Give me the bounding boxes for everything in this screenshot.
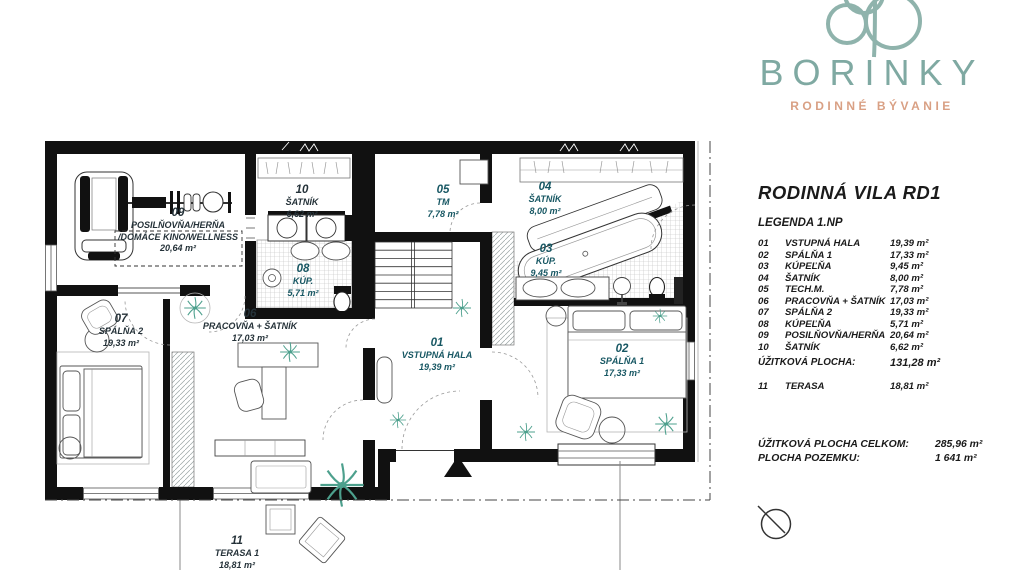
room-label-01: 01 VSTUPNÁ HALA 19,39 m² — [377, 336, 497, 373]
legend-heading: LEGENDA 1.NP — [758, 217, 843, 229]
nightstand-icon — [546, 306, 566, 326]
plot-area-row: PLOCHA POZEMKU: 1 641 m² — [758, 453, 1008, 467]
desk-return — [262, 367, 286, 419]
toilet-icon — [649, 278, 665, 300]
room-label-10: 10 ŠATNÍK 6,62 m² — [261, 183, 343, 220]
floor-plan-page: 01 VSTUPNÁ HALA 19,39 m² 02 SPÁLŇA 1 17,… — [0, 0, 1011, 570]
legend-list: 01VSTUPNÁ HALA19,39 m² 02SPÁLŇA 117,33 m… — [758, 238, 968, 353]
total-area-row: ÚŽITKOVÁ PLOCHA CELKOM: 285,96 m² — [758, 439, 1008, 453]
room-label-11: 11 TERASA 1 18,81 m² — [196, 534, 278, 570]
page-title: RODINNÁ VILA RD1 — [758, 182, 941, 204]
desk-icon — [238, 343, 318, 367]
brand-name: BORINKY — [752, 52, 992, 94]
brand-tagline: RODINNÉ BÝVANIE — [752, 99, 992, 113]
legend-row: 01VSTUPNÁ HALA19,39 m² — [758, 238, 968, 250]
legend-row: 02SPÁLŇA 117,33 m² — [758, 250, 968, 262]
legend-row: 10ŠATNÍK6,62 m² — [758, 342, 968, 354]
sink-icon — [523, 279, 557, 297]
terrace-row: 11 TERASA 18,81 m² — [758, 381, 978, 393]
study-furniture — [215, 343, 318, 456]
room-label-07: 07 SPÁLŇA 2 19,33 m² — [62, 312, 180, 349]
legend-row: 08KÚPEĽŇA5,71 m² — [758, 319, 968, 331]
room-label-02: 02 SPÁLŇA 1 17,33 m² — [562, 342, 682, 379]
room-label-06: 06 PRACOVŇA + ŠATNÍK 17,03 m² — [172, 307, 328, 344]
ottoman-icon — [599, 417, 625, 443]
room-label-08: 08 KÚP. 5,71 m² — [262, 262, 344, 299]
double-bed-icon — [60, 366, 142, 458]
armchair-icon — [553, 392, 604, 441]
coffee-table-icon — [266, 505, 295, 534]
north-compass-icon — [752, 501, 798, 543]
legend-row: 06PRACOVŇA + ŠATNÍK17,03 m² — [758, 296, 968, 308]
room-label-04: 04 ŠATNÍK 8,00 m² — [505, 180, 585, 217]
legend-row: 05TECH.M.7,78 m² — [758, 284, 968, 296]
sideboard-icon — [215, 440, 305, 456]
lounge-chair-icon — [298, 516, 346, 564]
room-label-09: 09 POSILŇOVŇA/HERŇA /DOMÁCE KINO/WELLNES… — [100, 206, 256, 254]
borinky-logo-icon — [818, 0, 926, 60]
sink-icon — [322, 242, 350, 260]
legend-row: 07SPÁLŇA 219,33 m² — [758, 307, 968, 319]
room-label-05: 05 TM 7,78 m² — [403, 183, 483, 220]
legend-row: 04ŠATNÍK8,00 m² — [758, 273, 968, 285]
sink-icon — [291, 242, 319, 260]
sink-icon — [561, 279, 595, 297]
staircase — [375, 242, 452, 308]
usable-area-row: ÚŽITKOVÁ PLOCHA: 131,28 m² — [758, 357, 978, 371]
legend-row: 03KÚPEĽŇA9,45 m² — [758, 261, 968, 273]
floor-plan-drawing — [0, 0, 745, 570]
room-label-03: 03 KÚP. 9,45 m² — [506, 242, 586, 279]
water-heater-icon — [460, 160, 488, 184]
towel-radiator-icon — [674, 277, 683, 304]
totals-block: ÚŽITKOVÁ PLOCHA CELKOM: 285,96 m² PLOCHA… — [758, 439, 1008, 466]
legend-row: 09POSILŇOVŇA/HERŇA20,64 m² — [758, 330, 968, 342]
desk-chair-icon — [233, 377, 266, 413]
